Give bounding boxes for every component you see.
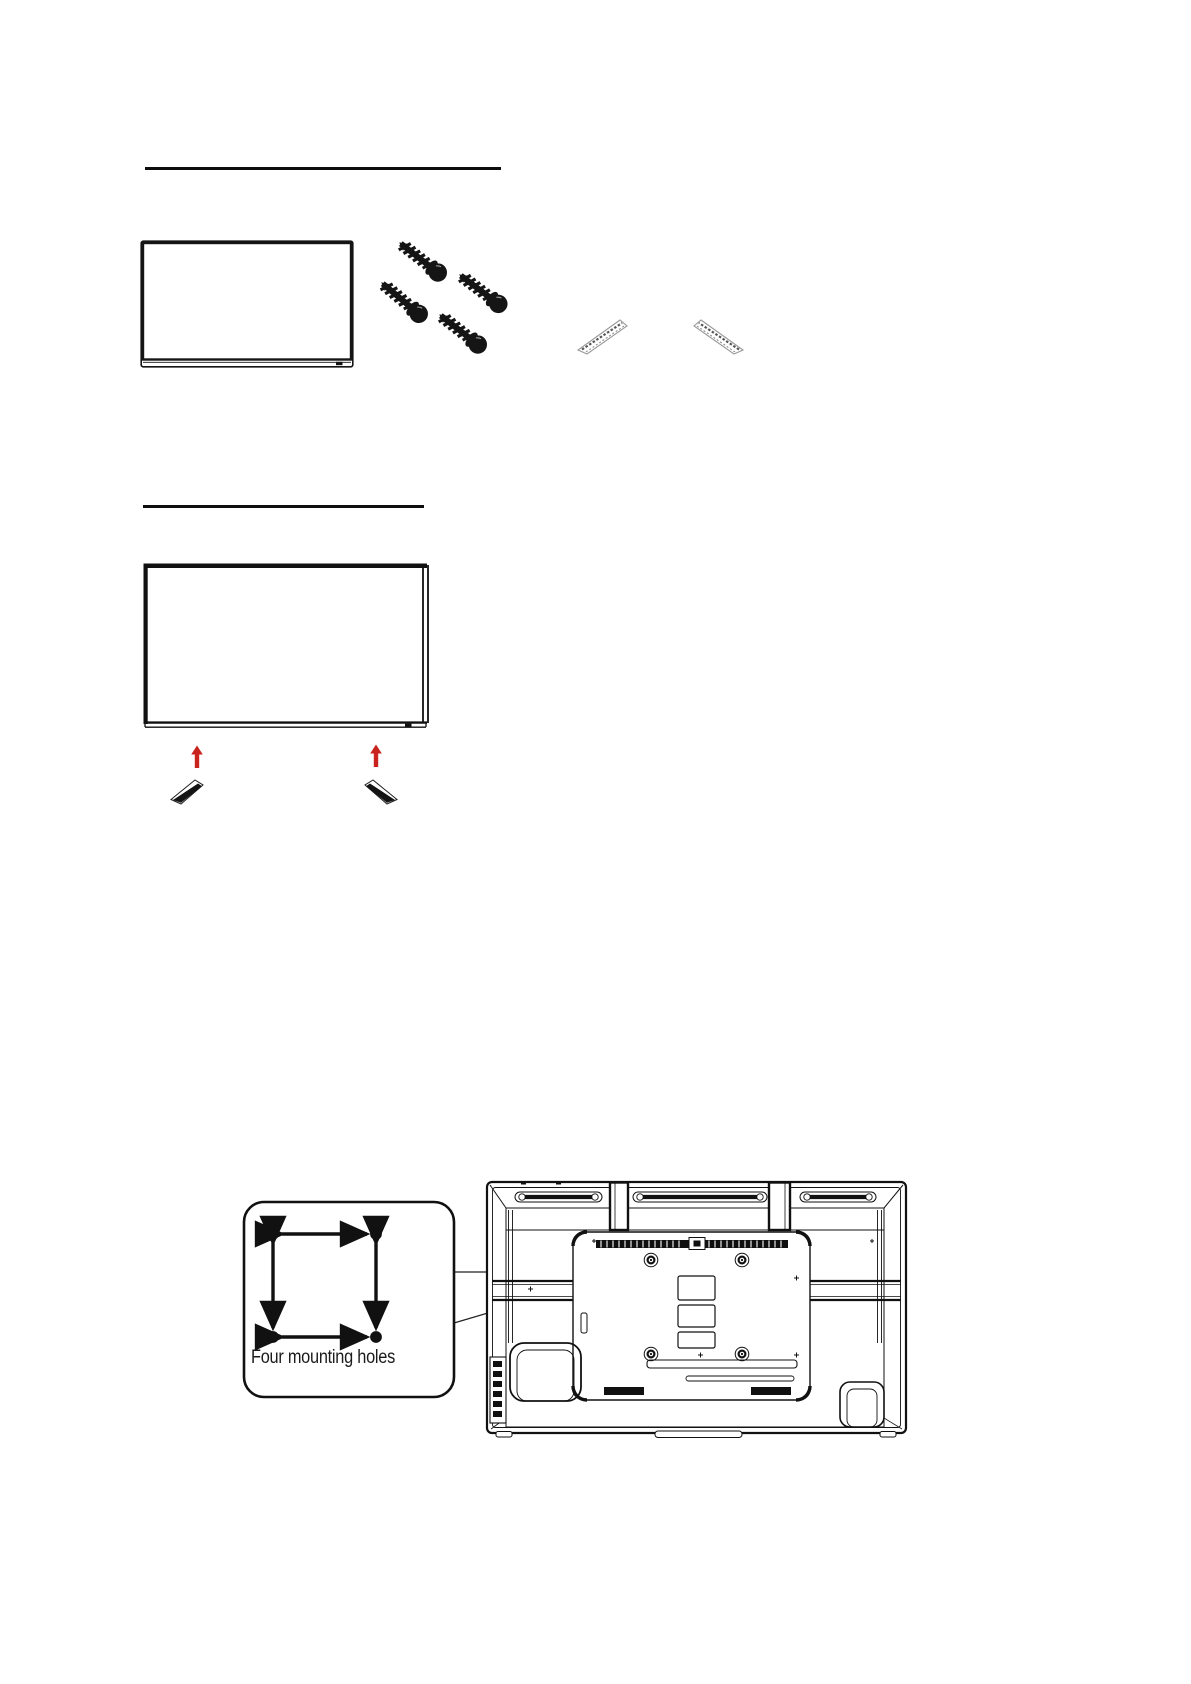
assembly-screws-icon — [373, 236, 525, 362]
top-bracket-bar — [610, 1183, 628, 1231]
vesa-mount-plate — [573, 1232, 810, 1400]
manual-page: Four mounting holes — [0, 0, 1191, 1684]
mounting-callout-box: Four mounting holes — [244, 1202, 454, 1397]
bottom-stand-notch — [655, 1431, 742, 1438]
mounting-hole-dot — [268, 1332, 279, 1343]
connector-ports-panel — [490, 1357, 506, 1423]
section-heading-rule-1 — [145, 167, 501, 170]
screw-icon — [434, 307, 491, 357]
stand-feet-icon — [573, 316, 748, 358]
stand-feet-detached-icon — [168, 778, 400, 808]
tv-front-illustration — [140, 240, 354, 370]
top-bracket-bar — [769, 1183, 790, 1231]
mounting-hole-dot — [371, 1332, 382, 1343]
mounting-hole-dot — [268, 1229, 279, 1240]
tv-front-with-arrows-illustration — [142, 562, 432, 732]
wall-mount-figure: Four mounting holes — [240, 1180, 920, 1452]
tv-ir-sensor-dot — [336, 362, 343, 365]
screw-icon — [454, 267, 512, 317]
mounting-holes-label: Four mounting holes — [251, 1347, 395, 1368]
screw-icon — [394, 236, 451, 285]
arrow-up-icon-left — [190, 745, 204, 769]
bottom-vent — [604, 1387, 644, 1395]
section-heading-rule-2 — [143, 505, 424, 508]
mounting-hole-dot — [371, 1229, 382, 1240]
screw-icon — [375, 275, 431, 327]
bottom-vent — [751, 1387, 791, 1395]
tv-rear-illustration — [487, 1182, 906, 1438]
tv-ir-sensor-dot — [405, 724, 412, 727]
arrow-up-icon-right — [369, 744, 383, 768]
